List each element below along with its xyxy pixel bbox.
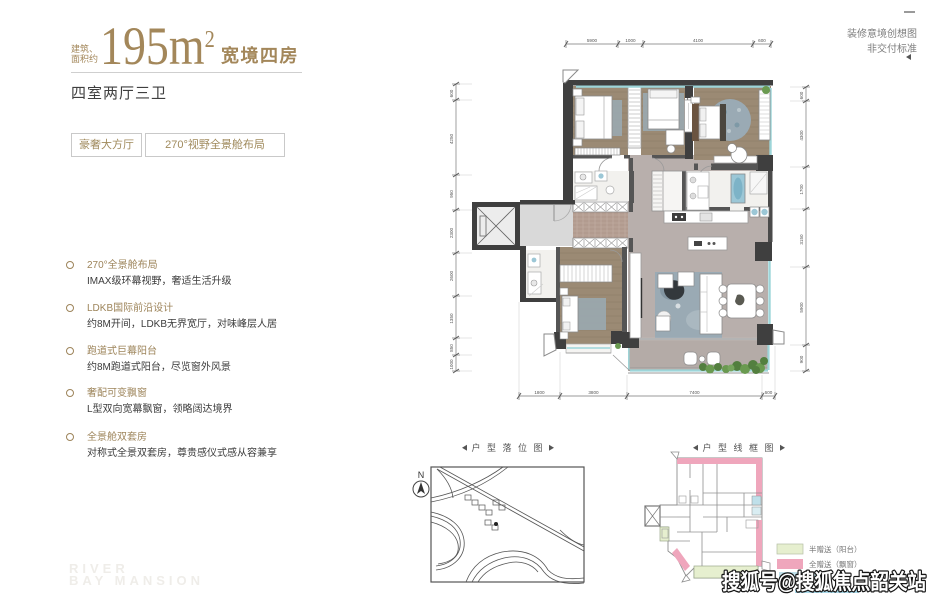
svg-text:1350: 1350 <box>449 313 454 324</box>
svg-text:1800: 1800 <box>534 390 545 395</box>
svg-text:5900: 5900 <box>799 302 804 313</box>
svg-text:2600: 2600 <box>449 270 454 281</box>
svg-text:850: 850 <box>449 344 454 352</box>
svg-text:户 型 线 框 图: 户 型 线 框 图 <box>702 442 775 453</box>
svg-text:1000: 1000 <box>449 359 454 370</box>
svg-text:3800: 3800 <box>588 390 599 395</box>
svg-text:950: 950 <box>449 190 454 198</box>
svg-text:半赠送（阳台）: 半赠送（阳台） <box>809 544 862 554</box>
svg-text:5900: 5900 <box>587 38 598 43</box>
svg-text:600: 600 <box>758 38 766 43</box>
svg-text:2300: 2300 <box>449 227 454 238</box>
svg-text:4300: 4300 <box>799 130 804 141</box>
svg-text:7400: 7400 <box>689 390 700 395</box>
svg-text:户 型 落 位 图: 户 型 落 位 图 <box>471 442 544 453</box>
svg-text:3150: 3150 <box>799 234 804 245</box>
svg-text:600: 600 <box>799 91 804 99</box>
svg-text:4100: 4100 <box>693 38 704 43</box>
svg-text:1000: 1000 <box>625 38 636 43</box>
svg-text:600: 600 <box>449 89 454 97</box>
svg-text:搜狐号@搜狐焦点韶关站: 搜狐号@搜狐焦点韶关站 <box>722 570 926 594</box>
svg-text:N: N <box>418 470 425 480</box>
svg-text:1700: 1700 <box>799 184 804 195</box>
svg-text:900: 900 <box>799 355 804 363</box>
svg-text:4250: 4250 <box>449 133 454 144</box>
svg-text:600: 600 <box>765 390 773 395</box>
